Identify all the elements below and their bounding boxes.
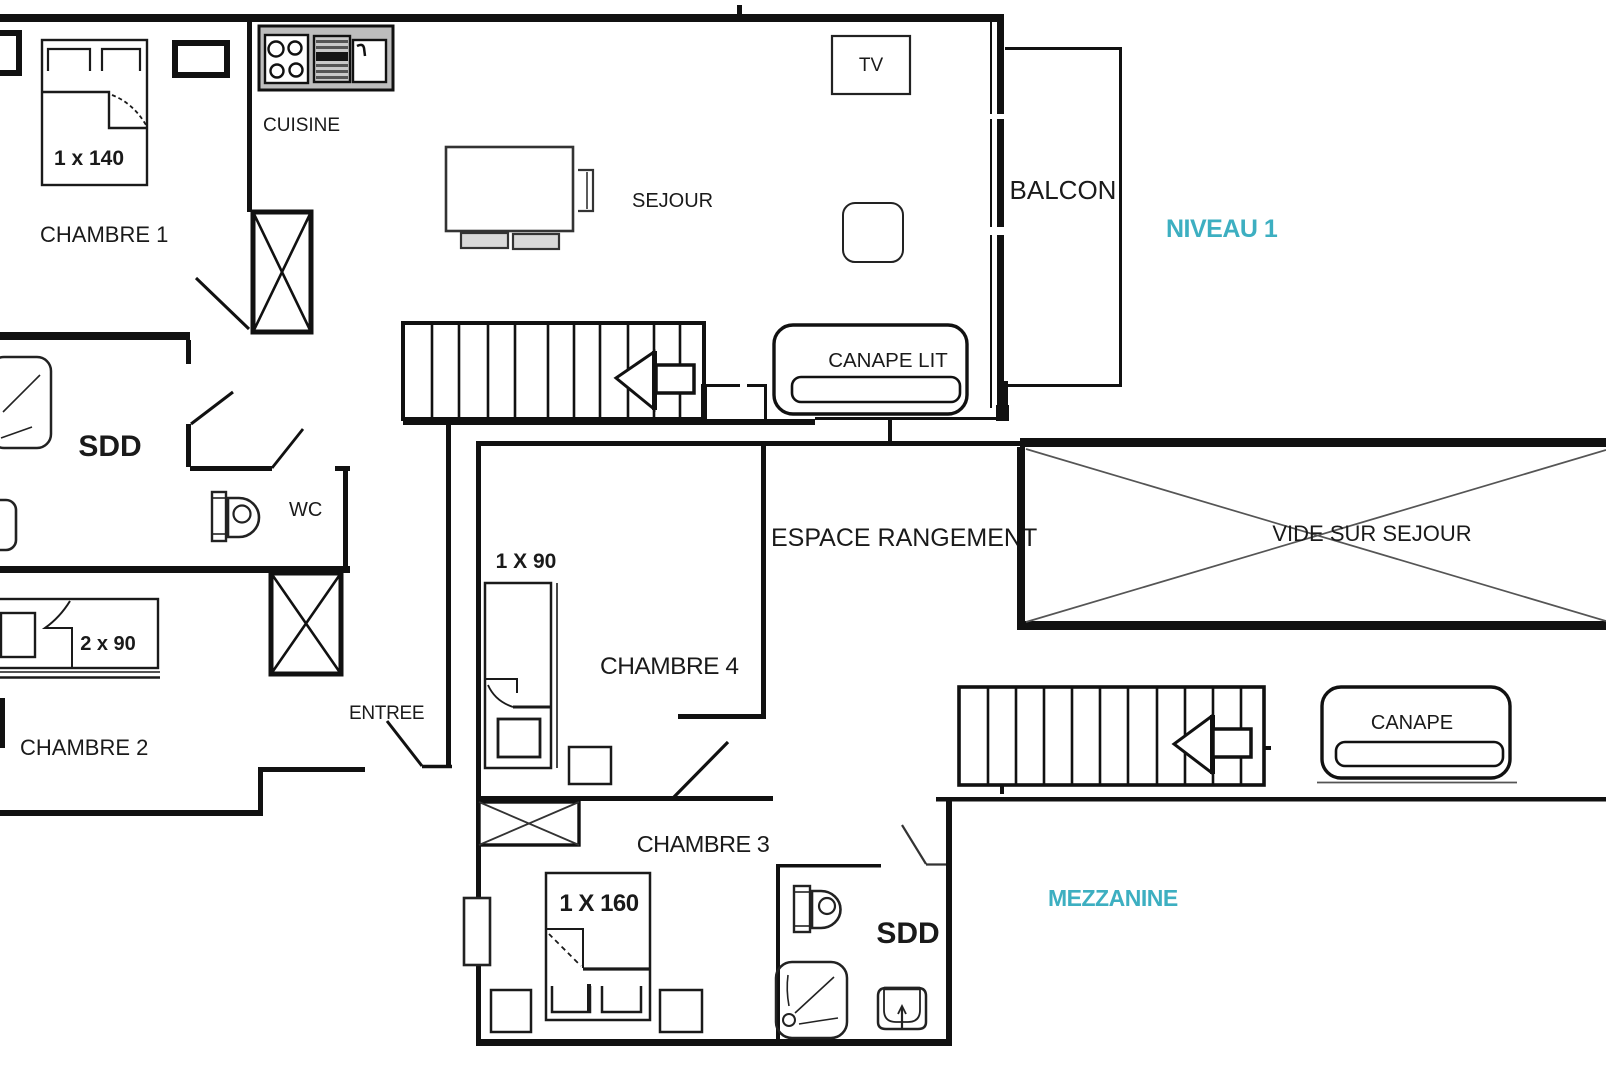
svg-text:TV: TV: [859, 55, 884, 76]
svg-text:CUISINE: CUISINE: [263, 115, 340, 136]
svg-text:CHAMBRE 3: CHAMBRE 3: [637, 831, 770, 857]
svg-text:ESPACE RANGEMENT: ESPACE RANGEMENT: [771, 524, 1037, 552]
svg-text:BALCON: BALCON: [1010, 175, 1117, 205]
svg-text:VIDE SUR SEJOUR: VIDE SUR SEJOUR: [1272, 521, 1471, 546]
svg-text:CANAPE: CANAPE: [1371, 712, 1453, 734]
svg-text:CHAMBRE 4: CHAMBRE 4: [600, 653, 738, 680]
svg-text:1 x 140: 1 x 140: [54, 147, 124, 170]
svg-text:ENTREE: ENTREE: [349, 703, 424, 724]
svg-text:CHAMBRE 2: CHAMBRE 2: [20, 735, 148, 760]
svg-text:1 X 160: 1 X 160: [559, 890, 638, 917]
svg-text:2 x 90: 2 x 90: [80, 633, 136, 655]
svg-text:1 X 90: 1 X 90: [496, 550, 557, 573]
svg-text:CHAMBRE 1: CHAMBRE 1: [40, 222, 168, 247]
svg-text:SEJOUR: SEJOUR: [632, 190, 713, 212]
svg-text:SDD: SDD: [876, 917, 939, 950]
svg-text:MEZZANINE: MEZZANINE: [1048, 885, 1178, 911]
svg-text:NIVEAU 1: NIVEAU 1: [1166, 215, 1278, 243]
svg-text:WC: WC: [289, 499, 322, 521]
svg-text:SDD: SDD: [78, 430, 141, 463]
svg-text:CANAPE LIT: CANAPE LIT: [828, 349, 948, 372]
